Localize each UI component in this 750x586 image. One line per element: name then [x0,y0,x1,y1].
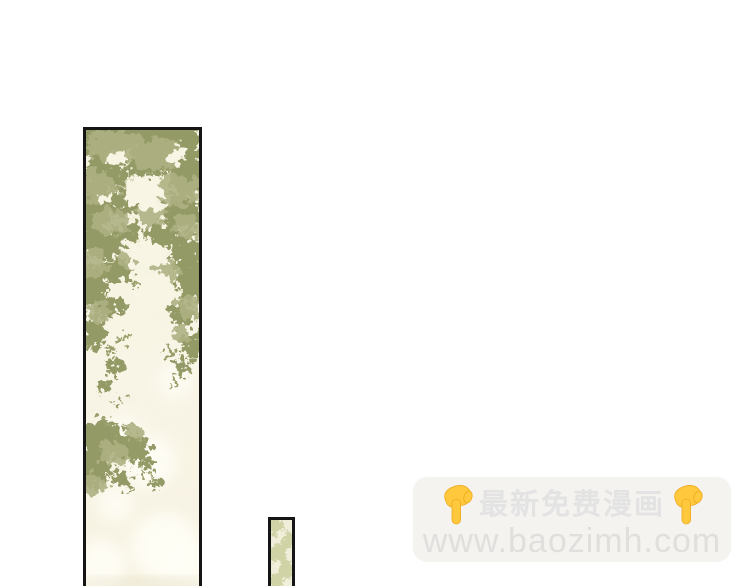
promo-headline: 最新免费漫画 [479,491,665,520]
foliage-artwork [86,130,199,586]
pointing-down-icon [671,483,703,527]
promo-banner[interactable]: 最新免费漫画 www.baozimh.com [413,477,731,562]
comic-page: 最新免费漫画 www.baozimh.com [0,0,750,586]
small-foliage-artwork [271,520,292,586]
panel-small-foliage [268,517,295,586]
promo-website-watermark: www.baozimh.com [423,524,721,558]
promo-headline-row: 最新免费漫画 [441,483,703,527]
pointing-down-icon [441,483,473,527]
panel-tall-foliage [83,127,202,586]
